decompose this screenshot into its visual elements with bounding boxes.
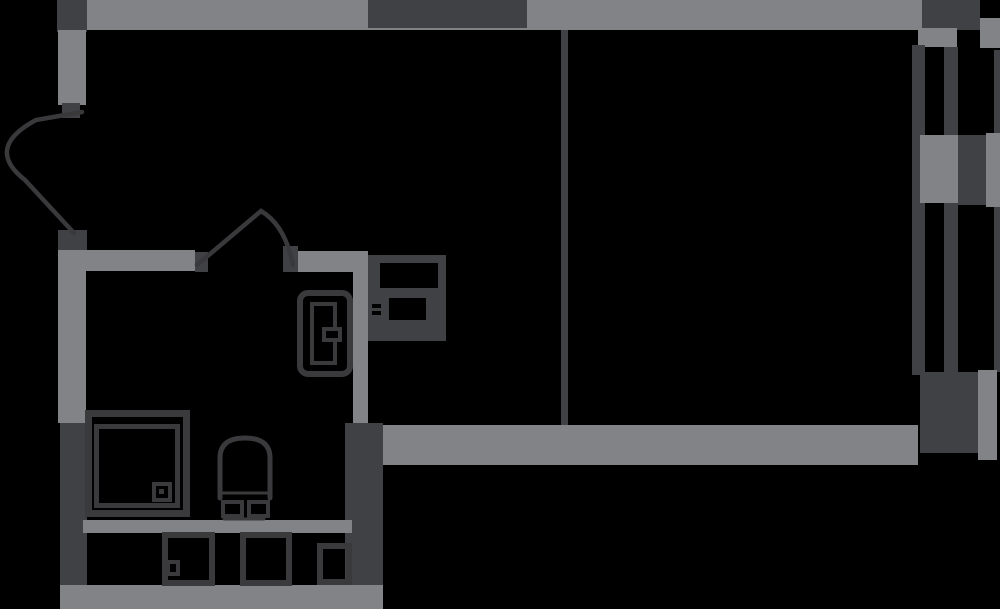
appliance-box-left-mark bbox=[168, 562, 178, 574]
window-pier-mid-gray bbox=[920, 135, 958, 203]
top-left-corner-block bbox=[57, 0, 87, 32]
floor-plan-svg bbox=[0, 0, 1000, 609]
entry-door-swing bbox=[7, 112, 82, 233]
left-wall-upper bbox=[58, 30, 86, 105]
hall-wall-vertical bbox=[353, 253, 368, 423]
stove-mark-2 bbox=[372, 311, 381, 315]
window-pier-mid-dark bbox=[958, 135, 986, 205]
floor-plan bbox=[0, 0, 1000, 609]
bath-wall-middle-band bbox=[83, 520, 352, 533]
toilet-tank-left bbox=[223, 502, 242, 516]
window-bottom-block bbox=[920, 372, 983, 453]
window-frame-inner bbox=[912, 45, 925, 375]
bottom-wall bbox=[60, 585, 383, 609]
left-wall-middle bbox=[58, 250, 86, 423]
living-wall-bottom bbox=[383, 425, 918, 465]
top-wall-dark-segment bbox=[368, 0, 527, 28]
stove-cutout-top bbox=[380, 263, 438, 288]
sink-cabinet-notch bbox=[324, 329, 340, 340]
stove-cutout-mid bbox=[389, 298, 426, 320]
window-pier-bottom-right bbox=[978, 370, 997, 460]
bath-wall-top-left bbox=[83, 250, 195, 271]
window-top-pier-right bbox=[980, 18, 1000, 48]
window-frame-middle bbox=[944, 47, 958, 375]
stove-mark-1 bbox=[372, 304, 381, 308]
window-pier-top bbox=[918, 28, 957, 47]
bath-door-swing bbox=[197, 211, 293, 265]
toilet-bowl bbox=[220, 438, 270, 498]
appliance-box-small bbox=[320, 546, 349, 582]
room-partition-line bbox=[561, 30, 568, 425]
shower-tray-inner bbox=[97, 427, 178, 506]
window-pier-mid-right bbox=[986, 133, 1000, 207]
shower-drain-dot bbox=[159, 489, 164, 494]
toilet-tank-right bbox=[249, 502, 268, 516]
left-wall-lower-dark bbox=[60, 423, 87, 585]
window-top-block bbox=[922, 0, 980, 30]
appliance-box-middle bbox=[243, 535, 289, 583]
window-frame-outer bbox=[994, 50, 1000, 372]
